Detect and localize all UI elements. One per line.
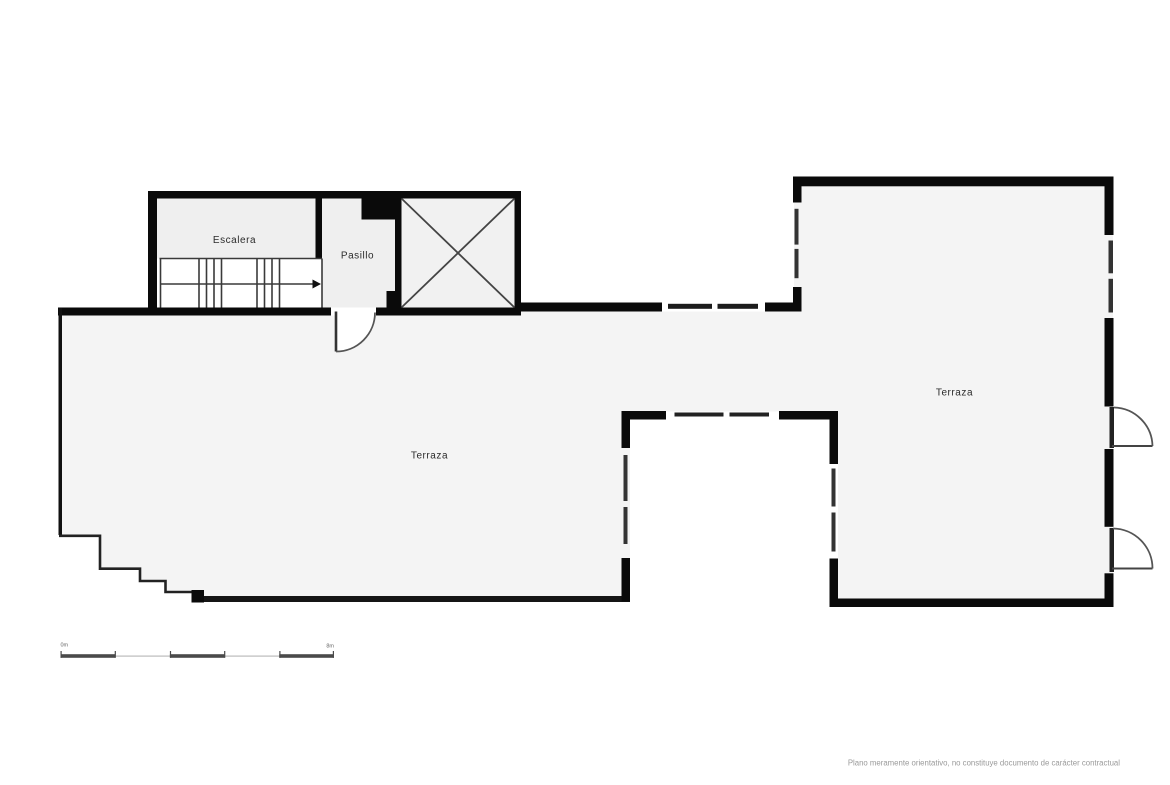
svg-text:Plano meramente orientativo, n: Plano meramente orientativo, no constitu… [848,759,1120,768]
svg-text:0m: 0m [61,643,69,649]
svg-text:8m: 8m [326,644,334,650]
svg-text:Terraza: Terraza [411,450,448,461]
svg-text:Pasillo: Pasillo [341,250,374,261]
svg-text:Escalera: Escalera [213,235,256,246]
svg-text:Terraza: Terraza [936,387,973,398]
